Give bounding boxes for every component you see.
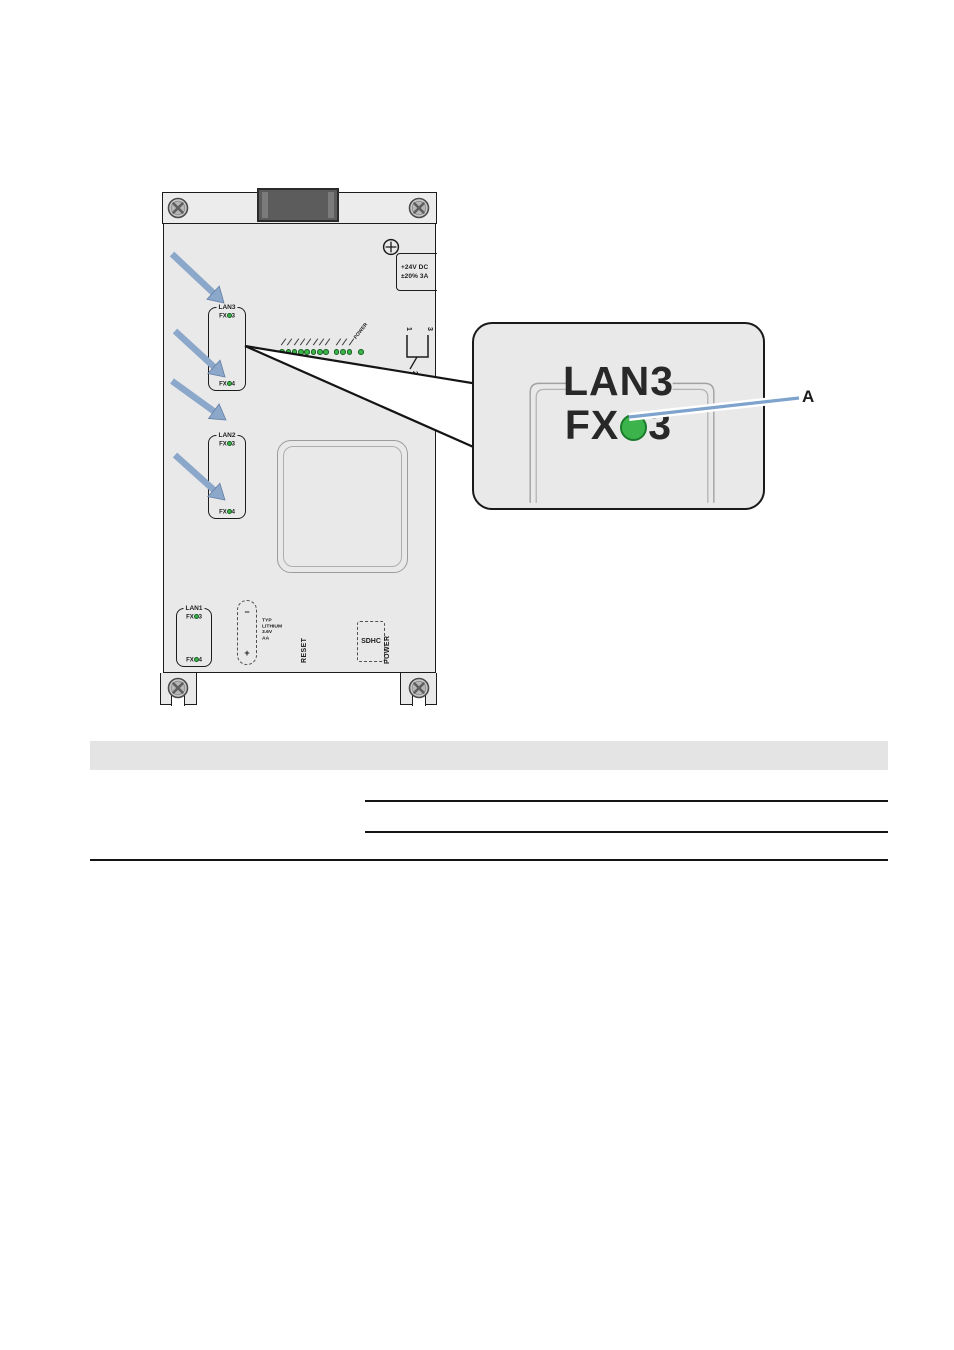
battery-slot: − + xyxy=(237,600,257,665)
pointer-arrow-layer xyxy=(0,0,954,1350)
battery-spec-label: TYP LITHIUM 3.6V AA xyxy=(262,617,282,641)
port-fx3-label: FX3 xyxy=(209,441,245,447)
callout-fx-number: 3 xyxy=(648,402,672,449)
sdhc-label: SDHC xyxy=(361,638,381,645)
zoom-wedge xyxy=(0,0,954,1350)
battery-plus-label: + xyxy=(238,648,256,658)
power-status-led xyxy=(358,349,364,355)
din-clip-strip xyxy=(328,192,334,218)
status-led xyxy=(304,349,310,355)
din-rail-clip xyxy=(257,188,339,222)
power-rating-label: +24V DC ±20% 3A xyxy=(396,253,437,291)
power-rating-line2: ±20% 3A xyxy=(401,272,437,281)
power-rating-line1: +24V DC xyxy=(401,263,437,272)
callout-fx-prefix: FX xyxy=(565,402,619,449)
table-bottom-rule xyxy=(90,859,888,861)
table-rule xyxy=(365,831,888,833)
screw-icon xyxy=(167,677,189,699)
screw-icon xyxy=(167,197,189,219)
relay-pin-2: 2 xyxy=(411,371,418,375)
port-fx3-label: FX3 xyxy=(209,313,245,319)
screw-icon xyxy=(408,197,430,219)
screw-icon xyxy=(408,677,430,699)
relay-pin-3: 3 xyxy=(426,327,433,331)
port-fx3-label: FX3 xyxy=(177,614,211,620)
table-rule xyxy=(365,800,888,802)
sdhc-slot: SDHC xyxy=(357,621,385,662)
page: +24V DC ±20% 3A LAN3 FX3 FX4 LAN2 FX3 FX… xyxy=(0,0,954,1350)
battery-minus-label: − xyxy=(238,607,256,617)
status-led xyxy=(334,349,340,355)
port-block-lan1: LAN1 FX3 FX4 xyxy=(176,608,212,667)
callout-bubble: LAN3 FX 3 xyxy=(472,322,765,510)
status-led xyxy=(323,349,329,355)
relay-contact-symbol: 1 3 2 xyxy=(396,318,436,378)
callout-green-led-icon xyxy=(620,414,647,441)
table-header-band xyxy=(90,741,888,770)
port-name-label: LAN3 xyxy=(217,304,238,311)
membrane-cover-inner-outline xyxy=(283,446,402,567)
callout-port-name: LAN3 xyxy=(474,358,763,405)
relay-pin-1: 1 xyxy=(405,327,412,331)
din-clip-strip xyxy=(262,192,268,218)
port-fx4-label: FX4 xyxy=(177,657,211,663)
port-fx4-label: FX4 xyxy=(209,381,245,387)
port-block-lan2: LAN2 FX3 FX4 xyxy=(208,435,246,519)
leader-line-layer xyxy=(0,0,954,1350)
status-led xyxy=(340,349,346,355)
status-led xyxy=(292,349,298,355)
power-label: POWER xyxy=(384,628,391,664)
port-fx4-label: FX4 xyxy=(209,509,245,515)
status-led xyxy=(298,349,304,355)
status-led xyxy=(286,349,292,355)
status-led xyxy=(347,349,353,355)
callout-fx-line: FX 3 xyxy=(474,402,763,449)
port-block-lan3: LAN3 FX3 FX4 xyxy=(208,307,246,391)
port-name-label: LAN1 xyxy=(184,605,205,612)
port-name-label: LAN2 xyxy=(217,432,238,439)
status-led xyxy=(311,349,317,355)
callout-marker-a: A xyxy=(802,387,814,407)
status-led xyxy=(317,349,323,355)
status-led xyxy=(279,349,285,355)
reset-label: RESET xyxy=(301,631,308,663)
